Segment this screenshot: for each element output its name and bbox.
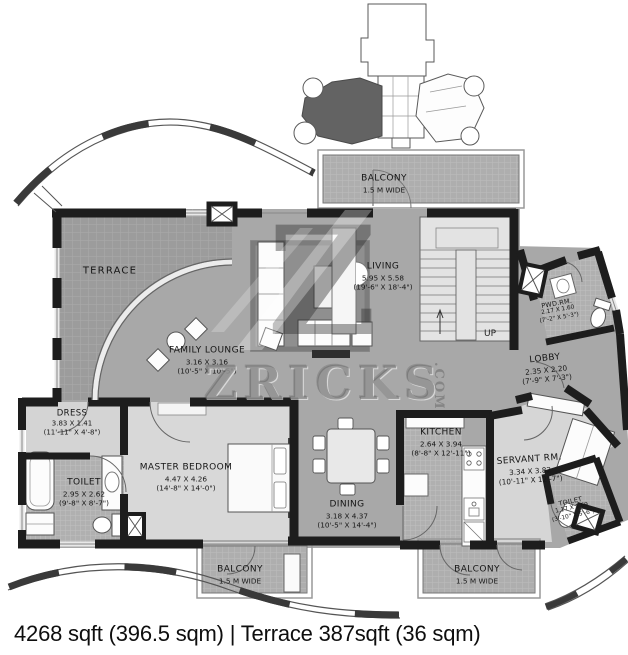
- railing-bottom-right: [545, 556, 628, 610]
- room-label-toilet-master: TOILET 2.95 X 2.62 (9'-8" X 8'-7"): [59, 478, 109, 509]
- room-label-servant-rm: SERVANT RM. 3.34 X 3.82 (10'-11" X 12'-7…: [496, 452, 563, 487]
- watermark-tld: .COM: [431, 362, 446, 411]
- stairs-up-label: UP: [484, 329, 497, 339]
- room-label-dining: DINING 3.18 X 4.37 (10'-5" X 14'-4"): [317, 500, 376, 531]
- floor-plan-drawing: Z UP: [0, 0, 628, 655]
- room-label-lobby: LOBBY 2.35 X 2.20 (7'-9" X 7'-3"): [520, 351, 573, 387]
- room-label-master-bedroom: MASTER BEDROOM 4.47 X 4.26 (14'-8" X 14'…: [140, 463, 233, 494]
- room-label-balcony-bl: BALCONY 1.5 M WIDE: [217, 564, 263, 585]
- room-label-living: LIVING 5.95 X 5.58 (19'-6" X 18'-4"): [353, 262, 412, 293]
- watermark-brand: ZRICKS: [204, 356, 443, 410]
- room-label-kitchen: KITCHEN 2.64 X 3.94 (8'-8" X 12'-11"): [411, 428, 470, 459]
- room-label-balcony-br: BALCONY 1.5 M WIDE: [454, 564, 500, 585]
- key-plan: [294, 4, 484, 148]
- room-label-terrace: TERRACE: [83, 265, 137, 278]
- room-label-balcony-top: BALCONY 1.5 M WIDE: [361, 173, 407, 194]
- area-caption: 4268 sqft (396.5 sqm) | Terrace 387sqft …: [14, 621, 481, 647]
- staircase: [420, 217, 514, 341]
- floor-plan-page: Z UP TERRACE BALCONY 1.5 M WIDE LIVING 5…: [0, 0, 628, 655]
- room-label-dress: DRESS 3.83 X 1.41 (11'-11" X 4'-8"): [44, 408, 101, 437]
